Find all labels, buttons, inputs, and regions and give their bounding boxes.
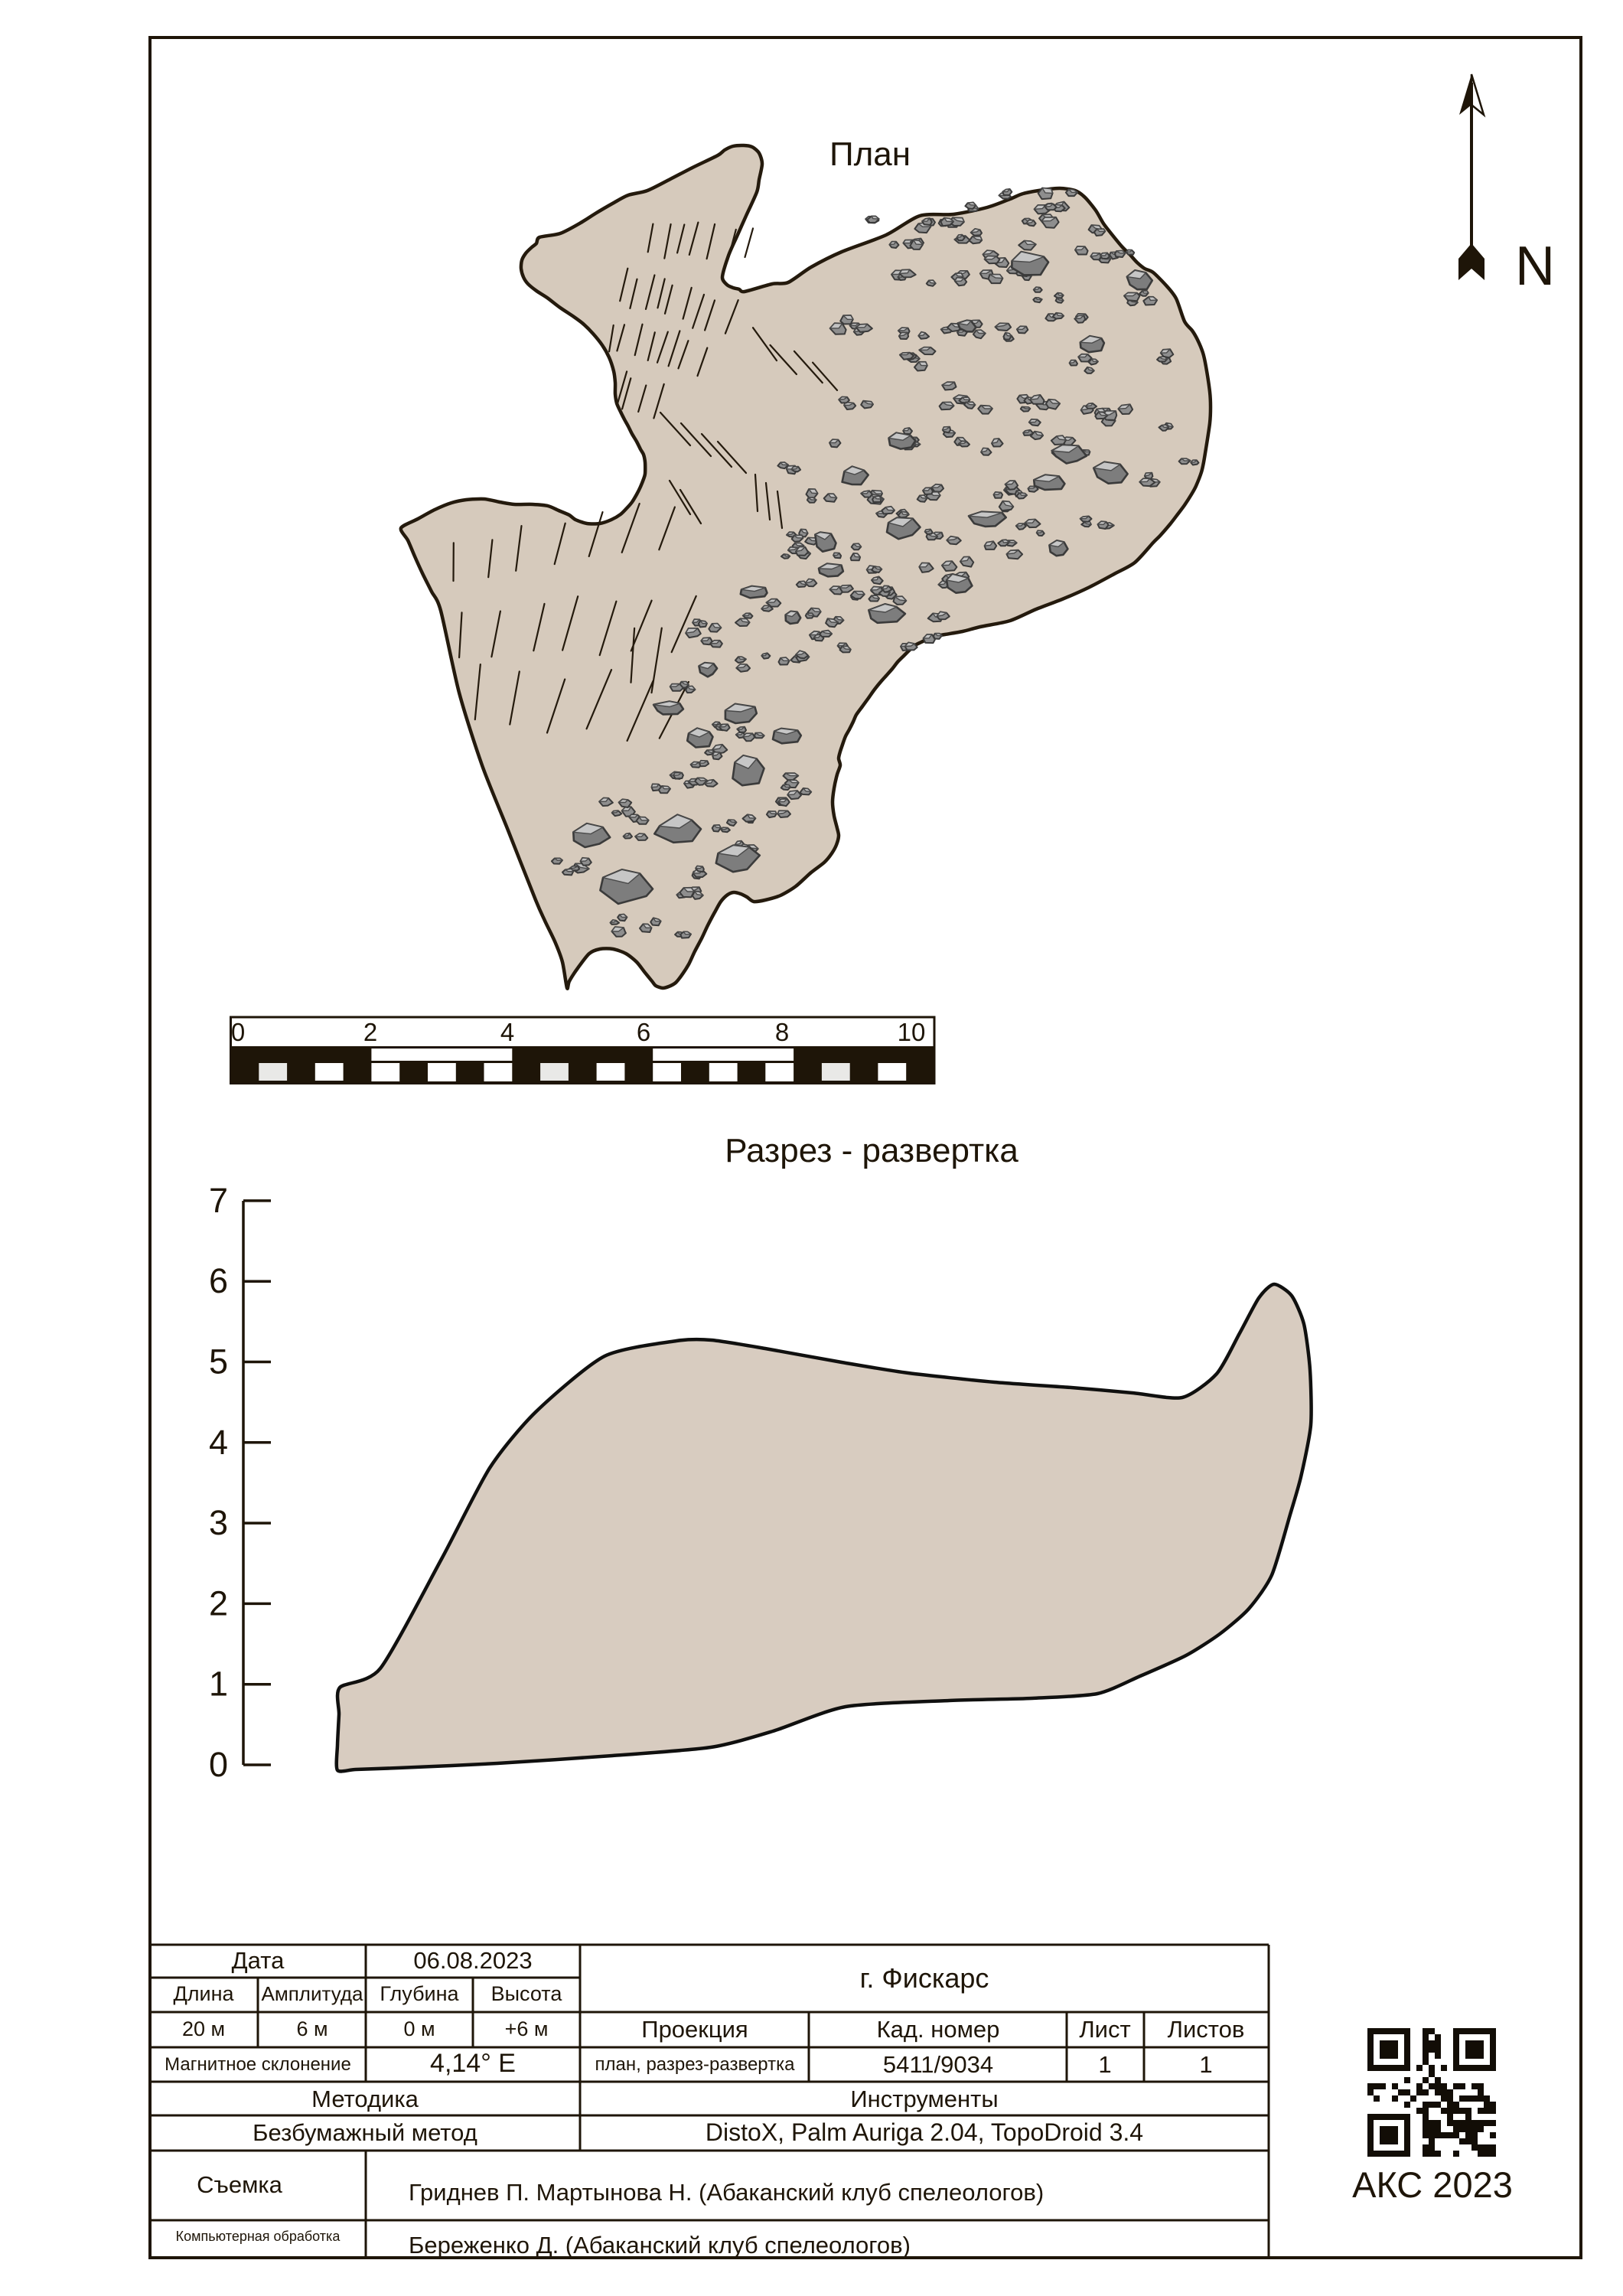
svg-text:20 м: 20 м	[182, 2017, 225, 2040]
svg-text:2: 2	[209, 1583, 228, 1623]
svg-text:4,14° E: 4,14° E	[430, 2049, 516, 2078]
svg-text:АКС 2023: АКС 2023	[1352, 2164, 1513, 2205]
svg-text:6 м: 6 м	[296, 2017, 328, 2040]
svg-text:1: 1	[209, 1665, 228, 1704]
svg-text:N: N	[1515, 236, 1555, 297]
svg-text:Магнитное склонение: Магнитное склонение	[165, 2054, 351, 2075]
svg-text:7: 7	[209, 1181, 228, 1220]
svg-text:план, разрез-развертка: план, разрез-развертка	[595, 2054, 796, 2075]
svg-text:Гриднев П. Мартынова Н. (Абака: Гриднев П. Мартынова Н. (Абаканский клуб…	[409, 2179, 1044, 2206]
svg-text:Кад. номер: Кад. номер	[877, 2016, 1000, 2043]
svg-text:г. Фискарс: г. Фискарс	[860, 1962, 989, 1994]
svg-text:Длина: Длина	[173, 1982, 234, 2005]
svg-text:Листов: Листов	[1168, 2016, 1245, 2043]
svg-text:Лист: Лист	[1079, 2016, 1130, 2043]
svg-text:0 м: 0 м	[403, 2017, 435, 2040]
svg-text:06.08.2023: 06.08.2023	[413, 1947, 532, 1974]
svg-text:4: 4	[500, 1018, 514, 1046]
svg-text:5411/9034: 5411/9034	[883, 2051, 993, 2078]
svg-text:1: 1	[1098, 2051, 1111, 2078]
svg-text:1: 1	[1199, 2051, 1212, 2078]
svg-text:0: 0	[231, 1018, 245, 1046]
svg-text:3: 3	[209, 1503, 228, 1542]
svg-text:Глубина: Глубина	[380, 1982, 459, 2005]
svg-text:Амплитуда: Амплитуда	[262, 1982, 363, 2005]
svg-text:DistoX, Palm Auriga 2.04, Topo: DistoX, Palm Auriga 2.04, TopoDroid 3.4	[706, 2118, 1143, 2146]
svg-text:Методика: Методика	[311, 2086, 419, 2112]
svg-text:Разрез - развертка: Разрез - развертка	[725, 1132, 1018, 1169]
svg-text:+6 м: +6 м	[505, 2017, 549, 2040]
svg-text:6: 6	[637, 1018, 650, 1046]
svg-text:План: План	[829, 135, 911, 173]
svg-text:8: 8	[775, 1018, 789, 1046]
svg-text:5: 5	[209, 1342, 228, 1381]
svg-text:Проекция: Проекция	[641, 2016, 748, 2043]
svg-text:Съемка: Съемка	[197, 2171, 283, 2198]
svg-text:Компьютерная обработка: Компьютерная обработка	[176, 2229, 341, 2244]
svg-text:0: 0	[209, 1745, 228, 1784]
svg-text:10: 10	[898, 1018, 926, 1046]
svg-text:Береженко Д. (Абаканский клуб: Береженко Д. (Абаканский клуб спелеолого…	[409, 2232, 911, 2258]
svg-text:Инструменты: Инструменты	[850, 2086, 998, 2112]
svg-text:4: 4	[209, 1423, 228, 1462]
svg-text:Высота: Высота	[491, 1982, 563, 2005]
svg-text:6: 6	[209, 1261, 228, 1300]
svg-text:2: 2	[363, 1018, 377, 1046]
svg-text:Дата: Дата	[232, 1947, 285, 1974]
svg-text:Безбумажный метод: Безбумажный метод	[253, 2119, 477, 2146]
